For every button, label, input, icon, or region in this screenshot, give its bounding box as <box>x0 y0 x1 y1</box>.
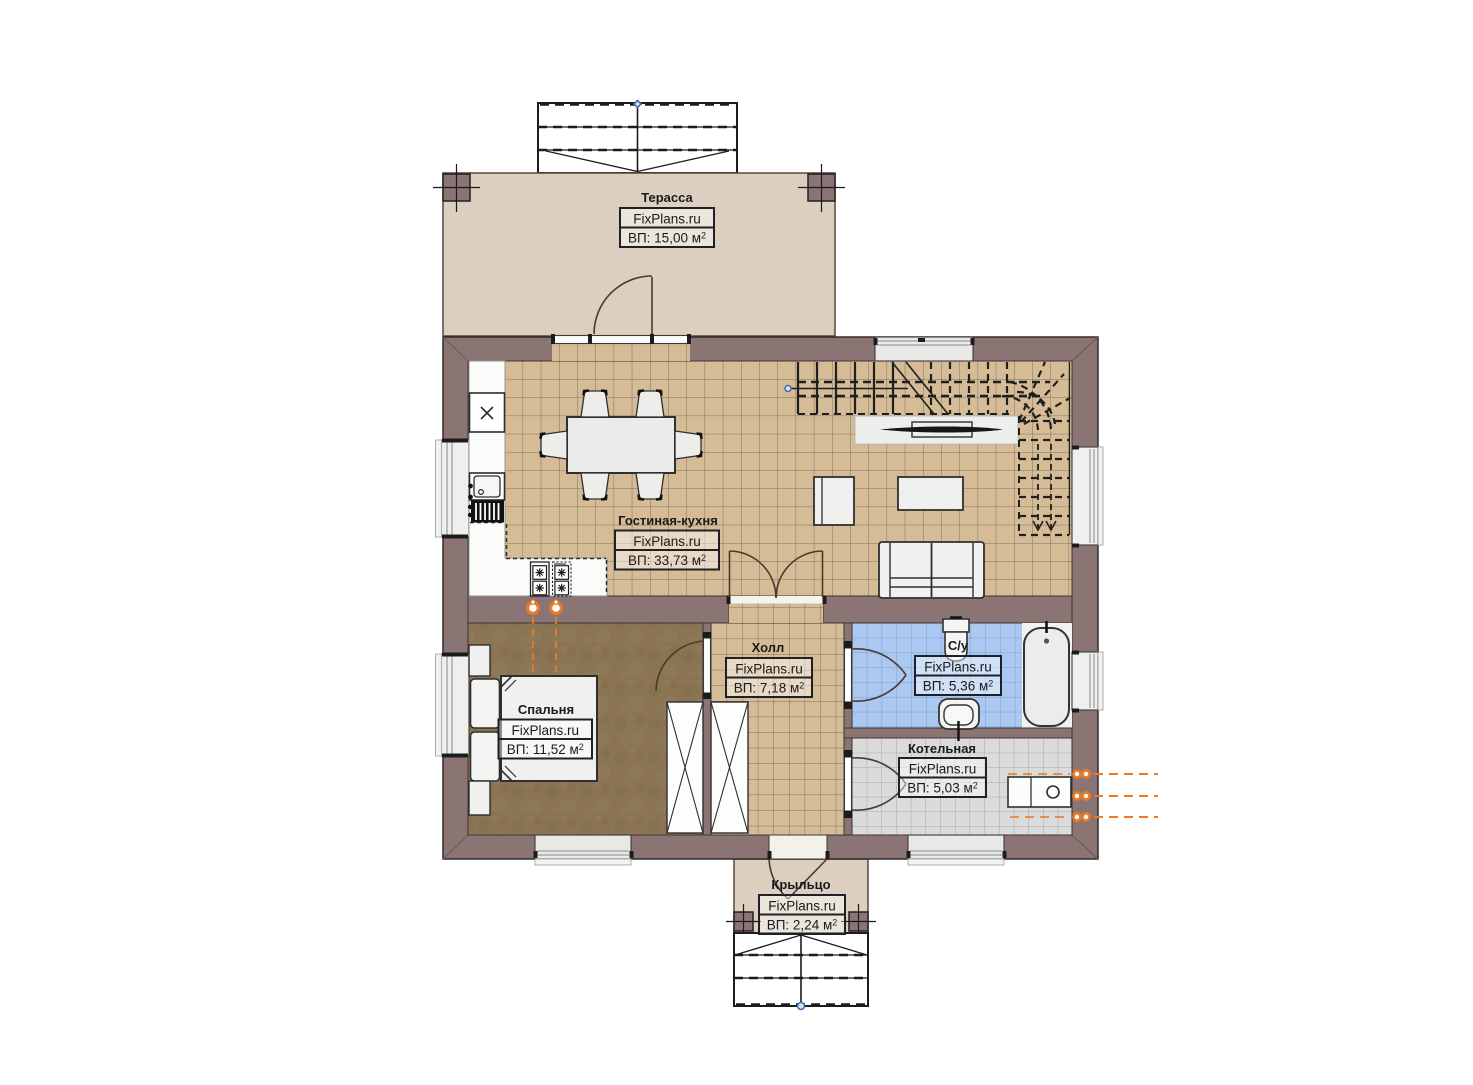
svg-text:Гостиная-кухня: Гостиная-кухня <box>618 513 718 528</box>
svg-text:ВП: 15,00 м2: ВП: 15,00 м2 <box>628 231 706 246</box>
svg-text:Крыльцо: Крыльцо <box>771 877 830 892</box>
svg-text:ВП: 2,24 м2: ВП: 2,24 м2 <box>767 918 838 933</box>
svg-text:Спальня: Спальня <box>518 702 574 717</box>
svg-text:С/у: С/у <box>948 638 969 653</box>
svg-text:ВП: 5,03 м2: ВП: 5,03 м2 <box>907 781 978 796</box>
svg-text:Котельная: Котельная <box>908 741 976 756</box>
svg-text:Холл: Холл <box>752 640 785 655</box>
svg-text:FixPlans.ru: FixPlans.ru <box>924 660 992 675</box>
svg-text:ВП: 11,52 м2: ВП: 11,52 м2 <box>507 742 584 757</box>
svg-text:FixPlans.ru: FixPlans.ru <box>633 212 701 227</box>
svg-text:ВП: 33,73 м2: ВП: 33,73 м2 <box>628 553 706 568</box>
svg-text:FixPlans.ru: FixPlans.ru <box>768 899 836 914</box>
svg-text:Терасса: Терасса <box>641 190 693 205</box>
svg-text:FixPlans.ru: FixPlans.ru <box>633 534 701 549</box>
svg-text:ВП: 5,36 м2: ВП: 5,36 м2 <box>923 679 994 694</box>
svg-text:FixPlans.ru: FixPlans.ru <box>511 723 579 738</box>
svg-text:FixPlans.ru: FixPlans.ru <box>735 662 803 677</box>
svg-text:FixPlans.ru: FixPlans.ru <box>909 762 977 777</box>
svg-text:ВП: 7,18 м2: ВП: 7,18 м2 <box>734 681 805 696</box>
